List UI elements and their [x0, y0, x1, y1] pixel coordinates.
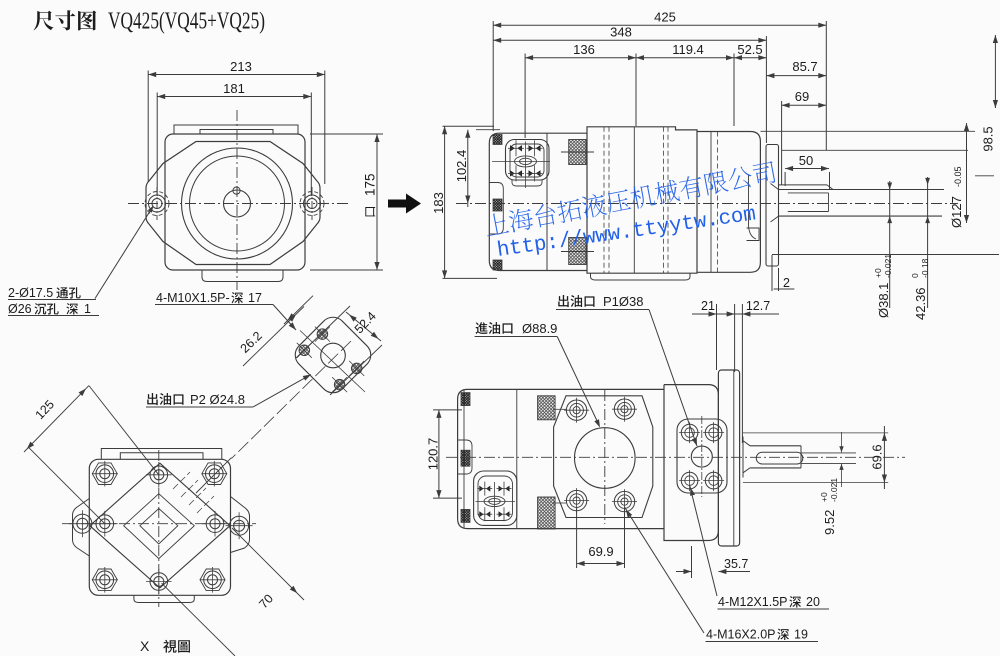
svg-text:175: 175 — [363, 173, 378, 196]
svg-text:183: 183 — [431, 192, 446, 214]
svg-text:19: 19 — [794, 628, 808, 642]
svg-text:35.7: 35.7 — [724, 557, 748, 571]
svg-text:348: 348 — [610, 25, 632, 40]
svg-text:20: 20 — [806, 595, 820, 609]
svg-text:12.7: 12.7 — [746, 299, 770, 313]
svg-text:-0.021: -0.021 — [883, 254, 893, 278]
svg-text:4-M16X2.0P: 4-M16X2.0P — [706, 628, 775, 642]
svg-text:50: 50 — [799, 153, 813, 168]
svg-text:-0.05: -0.05 — [953, 166, 963, 187]
svg-text:4-M10X1.5P-: 4-M10X1.5P- — [156, 291, 230, 305]
svg-text:+0: +0 — [819, 492, 829, 502]
svg-text:Ø127: Ø127 — [949, 196, 964, 228]
svg-text:119.4: 119.4 — [672, 42, 704, 57]
svg-text:VQ425(VQ45+VQ25): VQ425(VQ45+VQ25) — [108, 9, 265, 35]
svg-text:-0.021: -0.021 — [829, 478, 839, 502]
svg-text:0: 0 — [910, 273, 920, 278]
svg-text:Ø88.9: Ø88.9 — [522, 321, 557, 336]
svg-text:52.5: 52.5 — [737, 42, 762, 57]
svg-text:120.7: 120.7 — [426, 438, 441, 471]
svg-text:1: 1 — [84, 302, 91, 316]
svg-text:69.9: 69.9 — [588, 544, 613, 559]
svg-text:70: 70 — [256, 592, 276, 612]
svg-text:181: 181 — [223, 81, 245, 96]
svg-text:425: 425 — [654, 10, 676, 25]
svg-text:P2 Ø24.8: P2 Ø24.8 — [190, 392, 245, 407]
svg-text:213: 213 — [230, 59, 252, 74]
svg-text:69.6: 69.6 — [870, 444, 885, 469]
svg-text:+0: +0 — [873, 268, 883, 278]
svg-text:X: X — [140, 638, 150, 654]
svg-text:102.4: 102.4 — [454, 150, 469, 183]
svg-text:125: 125 — [33, 397, 57, 422]
svg-text:Ø26: Ø26 — [8, 302, 32, 316]
svg-text:http://www.ttyytw.com: http://www.ttyytw.com — [496, 203, 758, 263]
svg-text:69: 69 — [795, 89, 809, 104]
svg-text:85.7: 85.7 — [792, 59, 817, 74]
svg-text:136: 136 — [573, 42, 595, 57]
svg-text:9.52: 9.52 — [822, 510, 837, 535]
svg-text:P1Ø38: P1Ø38 — [603, 294, 643, 309]
svg-text:42.36: 42.36 — [913, 287, 928, 320]
svg-text:98.5: 98.5 — [981, 126, 996, 151]
svg-text:26.2: 26.2 — [238, 329, 265, 356]
svg-text:52.4: 52.4 — [352, 309, 379, 336]
svg-text:4-M12X1.5P: 4-M12X1.5P — [718, 595, 787, 609]
svg-text:21: 21 — [701, 299, 715, 313]
svg-text:2-Ø17.5: 2-Ø17.5 — [8, 286, 53, 300]
svg-text:Ø38.1: Ø38.1 — [876, 283, 891, 318]
svg-text:2: 2 — [783, 276, 790, 290]
svg-text:17: 17 — [248, 291, 262, 305]
svg-text:-0.18: -0.18 — [920, 258, 930, 278]
